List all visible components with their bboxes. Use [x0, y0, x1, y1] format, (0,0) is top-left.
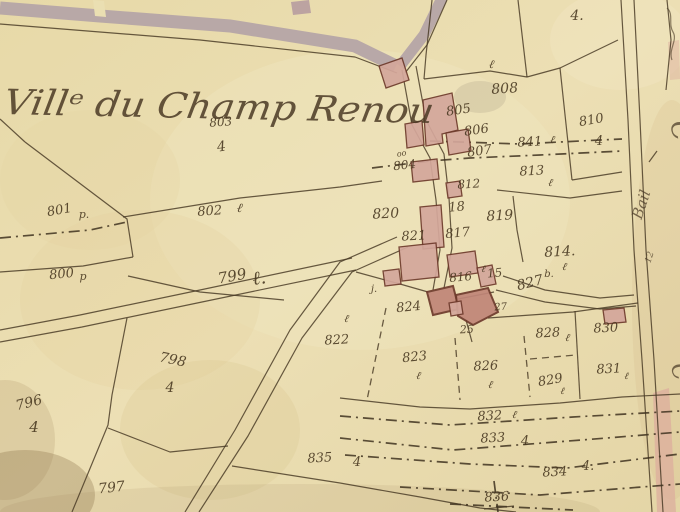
- parcel-label-oo: oo: [396, 148, 407, 159]
- paper-stain: [120, 360, 300, 500]
- building-footprint: [383, 269, 401, 286]
- parcel-label-804: 804: [392, 157, 416, 173]
- parcel-label-27: 27: [493, 301, 508, 313]
- parcel-label-25: 25: [458, 323, 474, 337]
- parcel-label-b: b.: [544, 269, 554, 280]
- parcel-label-4: 4: [594, 134, 603, 149]
- parcel-label-797: 797: [97, 479, 125, 498]
- parcel-label-18: 18: [448, 199, 466, 215]
- parcel-label-816: 816: [449, 269, 473, 285]
- parcel-label-817: 817: [445, 225, 472, 242]
- pink-wash: [291, 0, 311, 15]
- building-footprint: [449, 301, 463, 316]
- parcel-label-814: 814.: [544, 243, 576, 261]
- parcel-label-841: 841: [517, 134, 543, 150]
- parcel-label-813: 813: [519, 163, 545, 179]
- parcel-label-803: 803: [209, 114, 233, 130]
- parcel-label-p: p.: [79, 208, 90, 221]
- parcel-label-836: 836: [484, 489, 510, 505]
- building-footprint: [399, 243, 439, 281]
- parcel-label-822: 822: [324, 332, 350, 348]
- parcel-label-826: 826: [473, 358, 499, 374]
- parcel-label-812: 812: [457, 176, 481, 191]
- parcel-label-824: 824: [396, 299, 422, 317]
- parcel-label-4: 4.: [569, 8, 583, 24]
- parcel-label-808: 808: [491, 80, 519, 98]
- parcel-label-831: 831: [596, 361, 622, 377]
- parcel-label-4: 4: [165, 380, 175, 396]
- road-band-gap: [93, 0, 106, 17]
- parcel-label-4: 4.: [581, 459, 594, 474]
- parcel-label-834: 834: [542, 464, 568, 480]
- parcel-label-800: 800: [49, 266, 75, 284]
- parcel-label-4: 4: [28, 418, 39, 436]
- parcel-label-j: j.: [369, 284, 377, 295]
- parcel-label-4: 4: [352, 455, 361, 470]
- parcel-label-15: 15: [486, 265, 502, 280]
- parcel-label-4: 4: [520, 434, 529, 449]
- parcel-label-833: 833: [480, 430, 506, 446]
- cadastral-map-canvas[interactable]: Villᵉ du Champ Renou 8034801p.802ℓ800p79…: [0, 0, 680, 512]
- parcel-label-802: 802: [197, 203, 223, 220]
- parcel-label-835: 835: [307, 450, 333, 466]
- parcel-label-819: 819: [486, 207, 514, 224]
- parcel-label-820: 820: [372, 205, 400, 222]
- map-stage: Villᵉ du Champ Renou 8034801p.802ℓ800p79…: [0, 0, 680, 512]
- parcel-label-821: 821: [401, 228, 427, 244]
- parcel-label-830: 830: [593, 320, 619, 336]
- parcel-label-832: 832: [477, 408, 503, 424]
- parcel-label-p: p: [79, 270, 86, 283]
- parcel-label-828: 828: [535, 325, 561, 341]
- parcel-label-823: 823: [402, 349, 428, 367]
